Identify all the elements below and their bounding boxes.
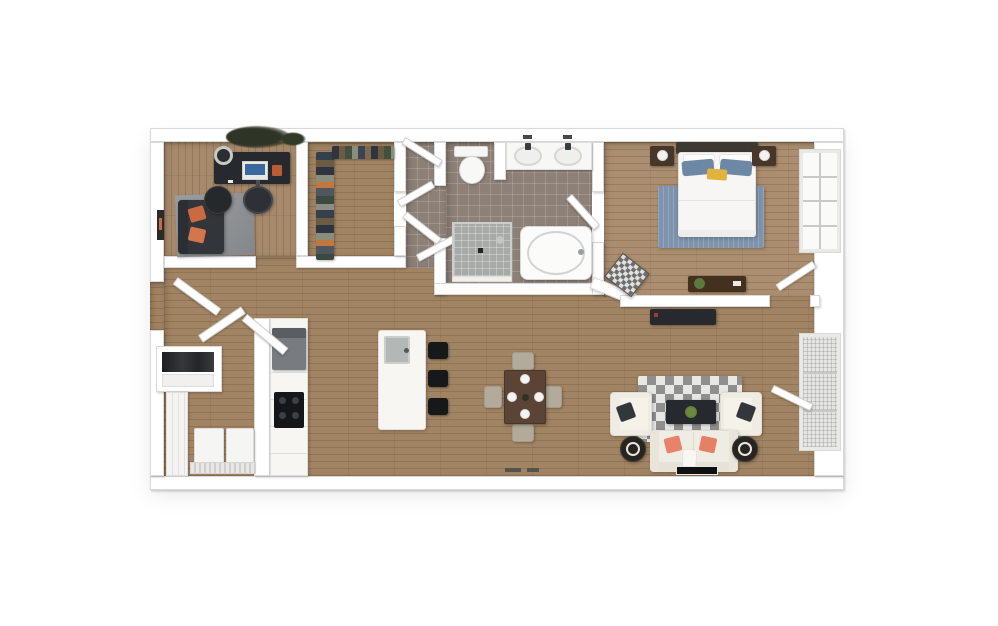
island-faucet <box>404 348 409 353</box>
burner-1 <box>279 397 286 404</box>
office-side-table <box>204 186 232 214</box>
cooktop <box>274 392 304 428</box>
floor-vent-left <box>505 468 521 472</box>
window-pane <box>821 202 837 225</box>
lamp-left <box>657 150 668 161</box>
office-loveseat-back <box>178 200 188 254</box>
bed-footboard <box>678 230 756 237</box>
round-stool <box>214 146 233 165</box>
shower-drain <box>478 248 483 253</box>
dining-chair-north <box>512 352 534 370</box>
bedroom-window <box>800 150 840 252</box>
side-table-right-tray <box>738 442 752 456</box>
window-pane <box>821 227 837 250</box>
coffee-table-plant <box>685 406 697 418</box>
accent-pillow <box>707 168 728 180</box>
wall-bottom <box>150 476 844 490</box>
place-setting-west <box>507 392 517 402</box>
wall-office-bottom <box>164 256 256 268</box>
wall-fixture-right <box>563 135 572 139</box>
patio-glass-door <box>800 334 840 450</box>
lamp-right <box>759 150 770 161</box>
wall-bath-bedroom-upper <box>592 142 604 192</box>
coat-closet-interior <box>162 352 214 372</box>
window-pane <box>821 153 837 176</box>
coat-closet-shelf <box>162 374 214 387</box>
faucet-right <box>565 143 571 150</box>
coral-pillow-right <box>699 436 718 454</box>
console-decor <box>733 281 741 286</box>
desk-accessory <box>272 165 282 176</box>
window-pane <box>821 178 837 201</box>
wall-toilet-partition <box>494 142 506 180</box>
wall-fixture-left <box>523 135 532 139</box>
sofa-arm-left <box>650 430 659 472</box>
floor-vent-right <box>527 468 539 472</box>
tv-console-device <box>654 313 658 317</box>
burner-4 <box>292 412 299 419</box>
place-setting-north <box>520 374 530 384</box>
ceiling-plant-frond <box>280 132 306 146</box>
tv-console <box>650 309 716 325</box>
bathtub-faucet <box>578 249 584 255</box>
bar-stool-2 <box>428 370 448 387</box>
window-pane <box>803 227 819 250</box>
laundry-sliding-door <box>166 392 188 476</box>
patio-door-pane <box>803 412 837 447</box>
place-setting-east <box>534 392 544 402</box>
toilet-bowl <box>459 156 485 184</box>
desk-paper <box>228 180 233 183</box>
floor-plan-canvas <box>0 0 998 626</box>
centerpiece <box>522 394 529 401</box>
wall-tv <box>676 466 718 475</box>
side-table-left-tray <box>626 442 640 456</box>
dining-chair-east <box>544 386 562 408</box>
shower-curb <box>452 276 512 282</box>
window-pane <box>803 202 819 225</box>
wall-closet-bottom <box>296 256 406 268</box>
wall-office-closet <box>296 142 308 256</box>
wall-bedroom-bottom-stub <box>810 295 820 307</box>
wall-closet-right-upper <box>394 142 406 192</box>
burner-3 <box>279 412 286 419</box>
dining-chair-west <box>484 386 502 408</box>
bathtub-basin <box>527 231 585 275</box>
bar-stool-3 <box>428 398 448 415</box>
hanging-clothes-left <box>316 152 334 260</box>
window-pane <box>803 178 819 201</box>
refrigerator-top <box>272 328 306 338</box>
bed-duvet-fold <box>679 200 755 201</box>
window-pane <box>803 153 819 176</box>
place-setting-south <box>520 409 530 419</box>
wall-bedroom-bottom <box>620 295 770 307</box>
faucet-left <box>525 143 531 150</box>
monitor-screen <box>245 164 265 175</box>
shower-accessory <box>496 236 504 244</box>
laundry-vent-grille <box>190 462 256 474</box>
burner-2 <box>292 397 299 404</box>
hanging-clothes-top <box>332 146 394 159</box>
wall-bath-bottom <box>434 283 604 295</box>
desk-chair <box>243 186 273 214</box>
wall-art-accent <box>159 218 162 230</box>
console-plant <box>694 278 705 289</box>
patio-door-pane <box>803 337 837 372</box>
bar-stool-1 <box>428 342 448 359</box>
entry-threshold-floor <box>150 282 164 330</box>
dining-chair-south <box>512 424 534 442</box>
wall-closet-right-lower <box>394 226 406 256</box>
white-throw <box>683 450 697 468</box>
